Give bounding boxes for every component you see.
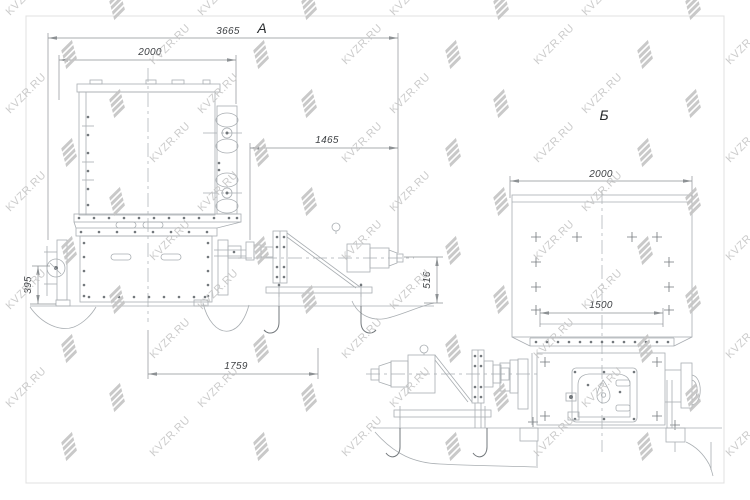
drawing-canvas: 3665 2000 1465 395 1759 516 А <box>0 0 750 500</box>
dimension-arrow <box>389 146 398 149</box>
dimension-arrow <box>510 179 519 182</box>
watermark-text: KVZR.RU <box>148 218 193 263</box>
watermark-text: KVZR.RU <box>148 414 193 459</box>
kvzr-logo-icon <box>438 432 467 461</box>
bolts-flange-a2 <box>80 231 209 234</box>
kvzr-logo-icon <box>294 285 323 314</box>
bolts-rail-a <box>278 284 363 287</box>
bolts-body-a <box>83 242 210 299</box>
watermark-text: KVZR.RU <box>724 414 750 459</box>
dimension-arrow <box>309 372 318 375</box>
dim-a-overall-width: 3665 <box>216 26 240 37</box>
dimension-arrow <box>48 36 57 39</box>
dimension-arrow <box>148 372 157 375</box>
watermark-text: KVZR.RU <box>340 218 385 263</box>
watermark-text: KVZR.RU <box>532 218 577 263</box>
kvzr-logo-icon <box>102 0 131 20</box>
kvzr-logo-icon <box>102 89 131 118</box>
door-hinge-top <box>616 380 630 386</box>
watermark-text: KVZR.RU <box>340 120 385 165</box>
dimension-arrow <box>36 295 39 304</box>
base-rail-b <box>394 410 491 417</box>
flange-bands-a <box>74 214 241 236</box>
dimension-arrow <box>540 311 549 314</box>
bearing-b <box>665 363 700 452</box>
watermark-text: KVZR.RU <box>532 120 577 165</box>
skid-foot-a1 <box>264 306 279 333</box>
view-b: 2000 1500 Б <box>366 107 722 476</box>
watermark-text: KVZR.RU <box>388 71 433 116</box>
left-bracket-a <box>44 240 67 300</box>
dimension-arrow <box>389 36 398 39</box>
kvzr-logo-icon <box>246 138 275 167</box>
watermark-text: KVZR.RU <box>148 22 193 67</box>
watermark-text: KVZR.RU <box>724 120 750 165</box>
kvzr-logo-icon <box>630 236 659 265</box>
kvzr-logo-icon <box>294 0 323 20</box>
watermark-layer: KVZR.RUKVZR.RUKVZR.RUKVZR.RUKVZR.RUKVZR.… <box>4 0 750 461</box>
door-hinge-bottom <box>616 405 630 411</box>
watermark-text: KVZR.RU <box>340 316 385 361</box>
dimension-arrow <box>654 311 663 314</box>
watermark-text: KVZR.RU <box>4 0 49 18</box>
watermark-text: KVZR.RU <box>340 414 385 459</box>
kvzr-logo-icon <box>54 432 83 461</box>
kvzr-logo-icon <box>102 187 131 216</box>
bolts-topbox-left <box>87 116 90 207</box>
crusher-body-a <box>56 236 212 306</box>
kvzr-logo-icon <box>630 432 659 461</box>
kvzr-logo-icon <box>54 334 83 363</box>
kvzr-logo-icon <box>486 0 515 20</box>
support-bracket-b-right <box>666 428 685 442</box>
watermark-text: KVZR.RU <box>388 169 433 214</box>
bolts-fan-panel <box>218 162 221 172</box>
kvzr-logo-icon <box>678 89 707 118</box>
kvzr-logo-icon <box>438 334 467 363</box>
kvzr-logo-icon <box>678 187 707 216</box>
view-a-label: А <box>256 20 266 36</box>
gusset-b <box>435 355 472 402</box>
kvzr-logo-icon <box>438 236 467 265</box>
kvzr-logo-icon <box>102 383 131 412</box>
kvzr-logo-icon <box>486 285 515 314</box>
kvzr-logo-icon <box>102 285 131 314</box>
kvzr-logo-icon <box>486 89 515 118</box>
kvzr-logo-icon <box>438 40 467 69</box>
kvzr-logo-icon <box>294 89 323 118</box>
dimension-arrow <box>227 58 236 61</box>
kvzr-logo-icon <box>630 138 659 167</box>
dim-a-motor-offset: 1465 <box>315 135 339 146</box>
support-bracket-b-left <box>520 428 538 441</box>
view-b-label: Б <box>599 107 608 123</box>
watermark-text: KVZR.RU <box>724 316 750 361</box>
watermark-text: KVZR.RU <box>148 120 193 165</box>
eyebolt-b <box>420 345 428 353</box>
kvzr-logo-icon <box>486 187 515 216</box>
kvzr-logo-icon <box>246 40 275 69</box>
watermark-text: KVZR.RU <box>532 316 577 361</box>
dimension-arrow <box>435 257 438 266</box>
watermark-text: KVZR.RU <box>724 22 750 67</box>
kvzr-logo-icon <box>246 432 275 461</box>
eyebolt-a <box>332 223 340 231</box>
dimension-arrow <box>435 294 438 303</box>
base-rail-a <box>266 287 372 293</box>
watermark-text: KVZR.RU <box>340 22 385 67</box>
technical-drawing: 3665 2000 1465 395 1759 516 А <box>0 0 750 500</box>
kvzr-logo-icon <box>294 187 323 216</box>
kvzr-logo-icon <box>678 0 707 20</box>
watermark-text: KVZR.RU <box>580 0 625 18</box>
watermark-text: KVZR.RU <box>196 71 241 116</box>
skid-foot-b2 <box>473 428 487 457</box>
watermark-text: KVZR.RU <box>196 365 241 410</box>
kvzr-logo-icon <box>438 138 467 167</box>
kvzr-logo-icon <box>678 285 707 314</box>
motor-assembly-b <box>371 345 509 428</box>
watermark-text: KVZR.RU <box>148 316 193 361</box>
watermark-text: KVZR.RU <box>724 218 750 263</box>
dimension-arrow <box>683 179 692 182</box>
bolts-flange-a1 <box>78 217 239 220</box>
kvzr-logo-icon <box>246 334 275 363</box>
watermark-text: KVZR.RU <box>388 0 433 18</box>
drawing-border <box>26 16 724 483</box>
watermark-text: KVZR.RU <box>388 365 433 410</box>
watermark-text: KVZR.RU <box>532 414 577 459</box>
watermark-text: KVZR.RU <box>532 22 577 67</box>
kvzr-logo-icon <box>294 383 323 412</box>
bolts-flange-plate-a <box>276 236 286 279</box>
kvzr-logo-icon <box>630 40 659 69</box>
watermark-text: KVZR.RU <box>196 0 241 18</box>
coupling-a <box>246 242 254 260</box>
centerline-crosses <box>528 232 680 430</box>
